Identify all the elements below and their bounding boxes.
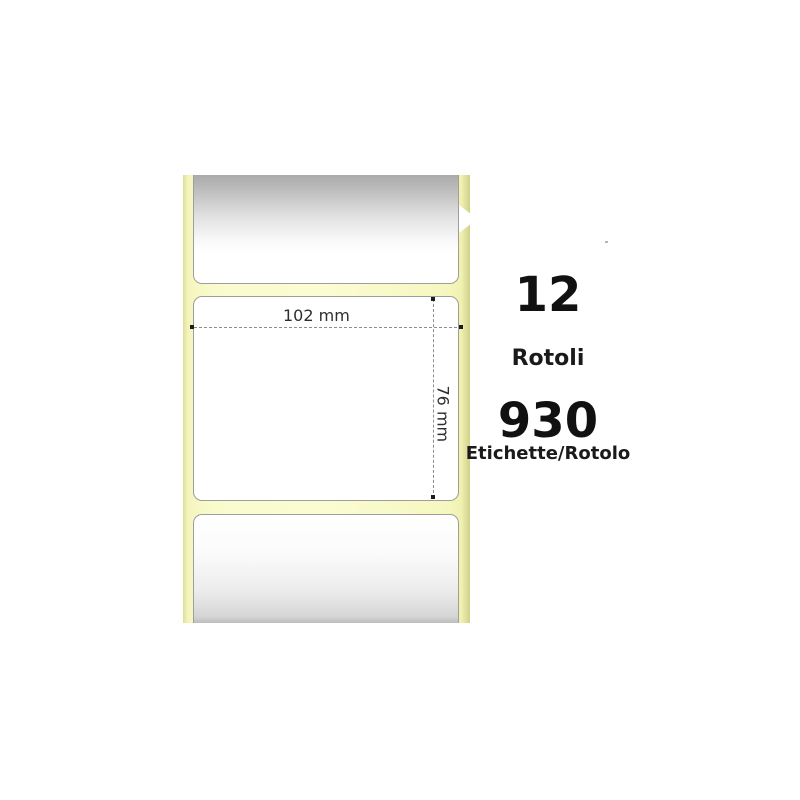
label-bottom-partial bbox=[193, 514, 459, 623]
labels-per-roll-label: Etichette/Rotolo bbox=[448, 444, 648, 464]
rolls-label: Rotoli bbox=[448, 344, 648, 374]
height-dimension-endpoint-top bbox=[431, 297, 435, 301]
width-dimension-endpoint-left bbox=[190, 325, 194, 329]
image-artifact-speck bbox=[605, 241, 608, 243]
liner-notch bbox=[459, 205, 470, 233]
rolls-count: 12 bbox=[448, 272, 648, 318]
height-dimension-endpoint-bottom bbox=[431, 495, 435, 499]
label-strip-liner bbox=[183, 175, 470, 623]
width-dimension-label: 102 mm bbox=[283, 306, 350, 325]
labels-per-roll-count: 930 bbox=[448, 398, 648, 444]
product-image-page: 102 mm 76 mm 12 Rotoli 930 Etichette/Rot… bbox=[0, 0, 800, 800]
label-top-partial bbox=[193, 175, 459, 284]
width-dimension-line bbox=[194, 327, 462, 328]
product-info-block: 12 Rotoli 930 Etichette/Rotolo bbox=[448, 272, 648, 464]
